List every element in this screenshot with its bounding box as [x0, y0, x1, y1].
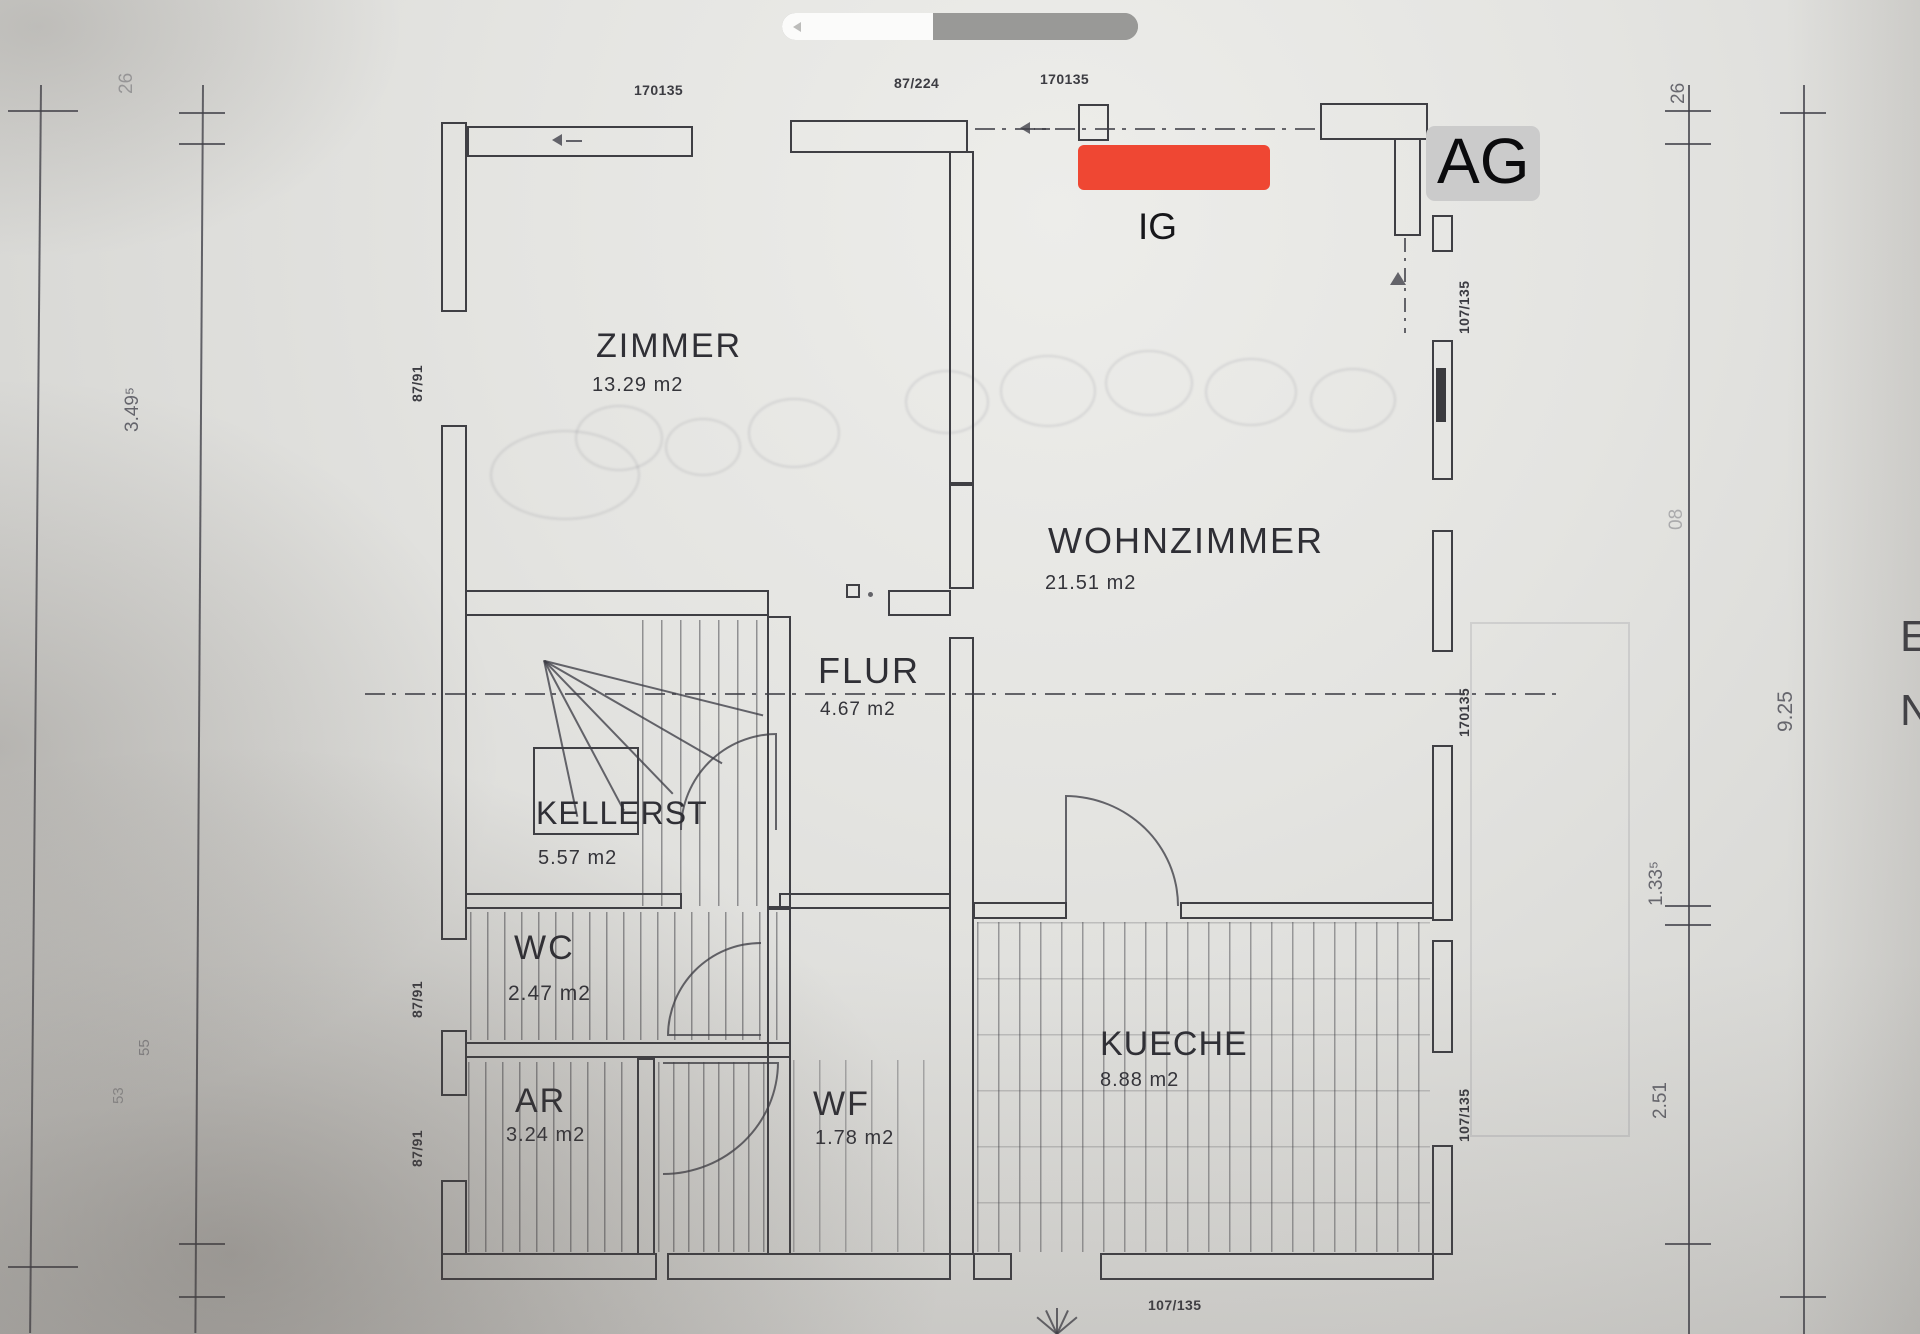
- screenshot-root: ZIMMER 13.29 m2 WOHNZIMMER 21.51 m2 FLUR…: [0, 0, 1920, 1334]
- ui-overlay: IG AG: [0, 0, 1920, 1334]
- ag-annotation-label: AG: [1426, 126, 1540, 201]
- scrubber-fill: [782, 13, 933, 40]
- redaction-box: [1078, 145, 1270, 190]
- scrubber-track: [933, 13, 1138, 40]
- ig-annotation-label: IG: [1138, 206, 1177, 248]
- scrubber-pill[interactable]: [782, 13, 1138, 40]
- speaker-icon: [793, 22, 801, 32]
